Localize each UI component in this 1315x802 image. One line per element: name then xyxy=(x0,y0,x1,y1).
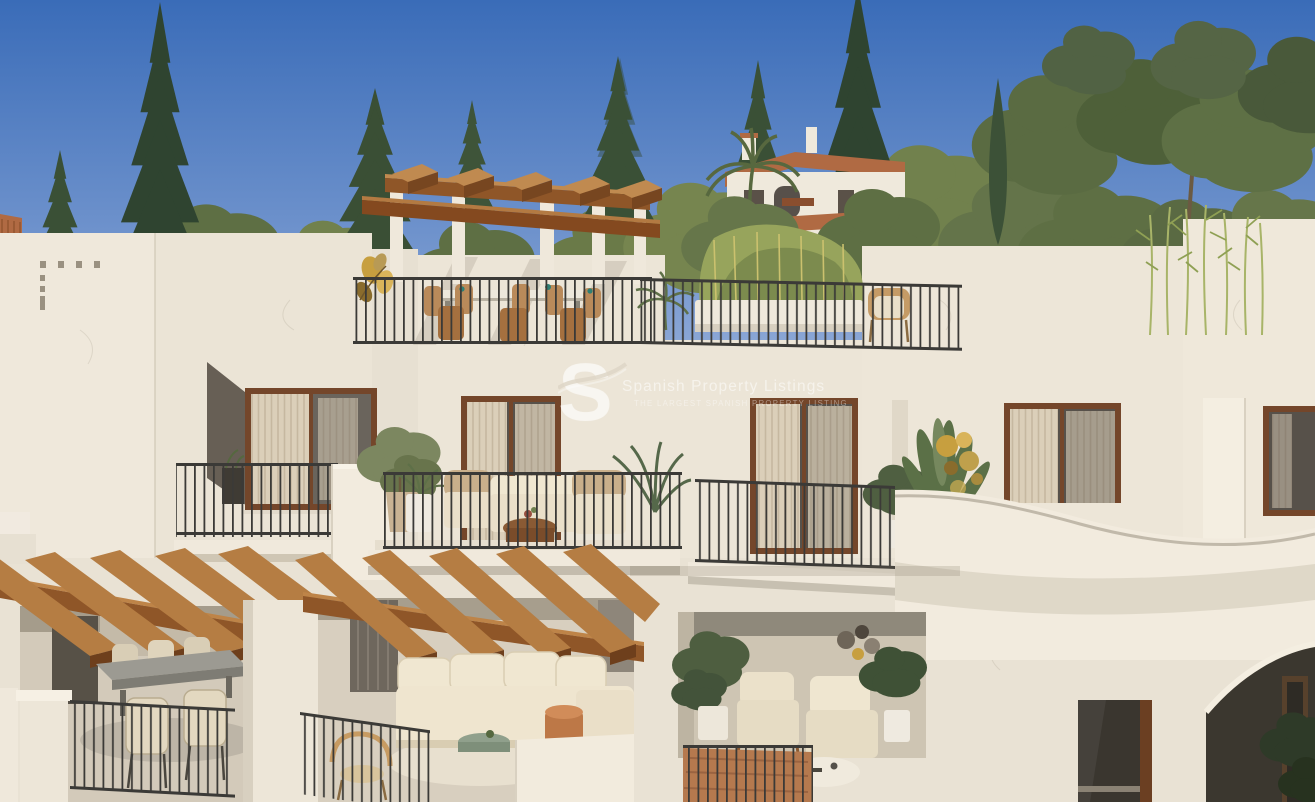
lower-right-railing xyxy=(683,745,813,802)
rooftop-railing-right xyxy=(640,278,962,351)
window-edge xyxy=(1263,406,1315,516)
property-render-image: S Spanish Property Listings THE LARGEST … xyxy=(0,0,1315,802)
rooftop-railing xyxy=(353,277,652,344)
foreground-parapet xyxy=(515,734,634,802)
scene-illustration xyxy=(0,0,1315,802)
lower-window-opening xyxy=(1078,700,1152,802)
lower-left-railing xyxy=(70,700,235,798)
balcony-left-railing xyxy=(174,463,344,562)
window-far-right xyxy=(1004,403,1121,503)
balcony-right-railing xyxy=(695,479,895,569)
